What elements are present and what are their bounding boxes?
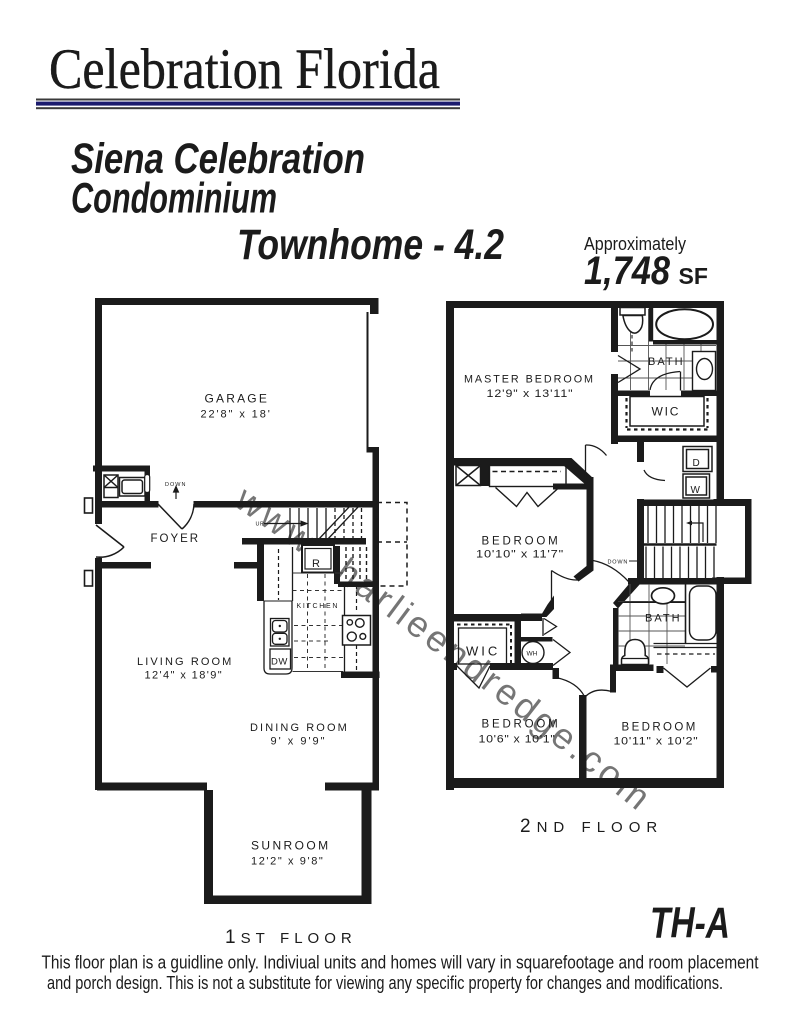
svg-text:This floor plan is a guidline: This floor plan is a guidline only. Indi… <box>42 953 759 973</box>
svg-text:UP: UP <box>256 522 265 528</box>
svg-text:SUNROOM: SUNROOM <box>251 839 330 853</box>
svg-text:DW: DW <box>271 657 288 668</box>
svg-text:KITCHEN: KITCHEN <box>297 603 340 610</box>
svg-text:GARAGE: GARAGE <box>205 392 270 406</box>
svg-text:BATH: BATH <box>645 613 682 625</box>
svg-text:WIC: WIC <box>466 644 500 659</box>
svg-text:W: W <box>691 485 701 496</box>
svg-text:TH-A: TH-A <box>650 899 730 948</box>
svg-text:10'6" x 10'1": 10'6" x 10'1" <box>479 734 556 746</box>
svg-text:12'2" x 9'8": 12'2" x 9'8" <box>251 856 324 868</box>
svg-text:BEDROOM: BEDROOM <box>482 536 561 548</box>
svg-text:DINING ROOM: DINING ROOM <box>250 722 349 734</box>
svg-text:1ST FLOOR: 1ST FLOOR <box>225 927 357 948</box>
svg-text:MASTER BEDROOM: MASTER BEDROOM <box>464 374 595 386</box>
svg-text:BEDROOM: BEDROOM <box>482 719 561 731</box>
svg-text:2ND FLOOR: 2ND FLOOR <box>520 816 663 837</box>
svg-text:LIVING ROOM: LIVING ROOM <box>137 656 233 668</box>
svg-text:Celebration Florida: Celebration Florida <box>49 38 440 101</box>
svg-text:and porch design. This is not: and porch design. This is not a substitu… <box>47 973 723 993</box>
svg-text:1,748: 1,748 <box>584 249 671 293</box>
svg-text:Condominium: Condominium <box>71 175 277 223</box>
svg-text:9' x 9'9": 9' x 9'9" <box>271 736 327 748</box>
svg-text:22'8" x 18': 22'8" x 18' <box>201 409 272 421</box>
svg-text:10'11" x 10'2": 10'11" x 10'2" <box>614 736 699 748</box>
svg-text:BEDROOM: BEDROOM <box>622 722 698 734</box>
svg-text:WIC: WIC <box>652 405 681 419</box>
svg-text:FOYER: FOYER <box>151 533 201 545</box>
svg-text:10'10" x 11'7": 10'10" x 11'7" <box>476 549 564 561</box>
svg-text:SF: SF <box>679 263 708 289</box>
svg-text:D: D <box>693 458 700 469</box>
svg-text:DOWN: DOWN <box>608 560 629 566</box>
svg-text:Townhome - 4.2: Townhome - 4.2 <box>237 221 504 269</box>
svg-text:R: R <box>312 558 320 570</box>
svg-text:12'9" x 13'11": 12'9" x 13'11" <box>487 388 574 400</box>
svg-text:WH: WH <box>527 651 538 658</box>
svg-text:BATH: BATH <box>648 356 685 368</box>
svg-text:12'4" x 18'9": 12'4" x 18'9" <box>145 670 224 682</box>
